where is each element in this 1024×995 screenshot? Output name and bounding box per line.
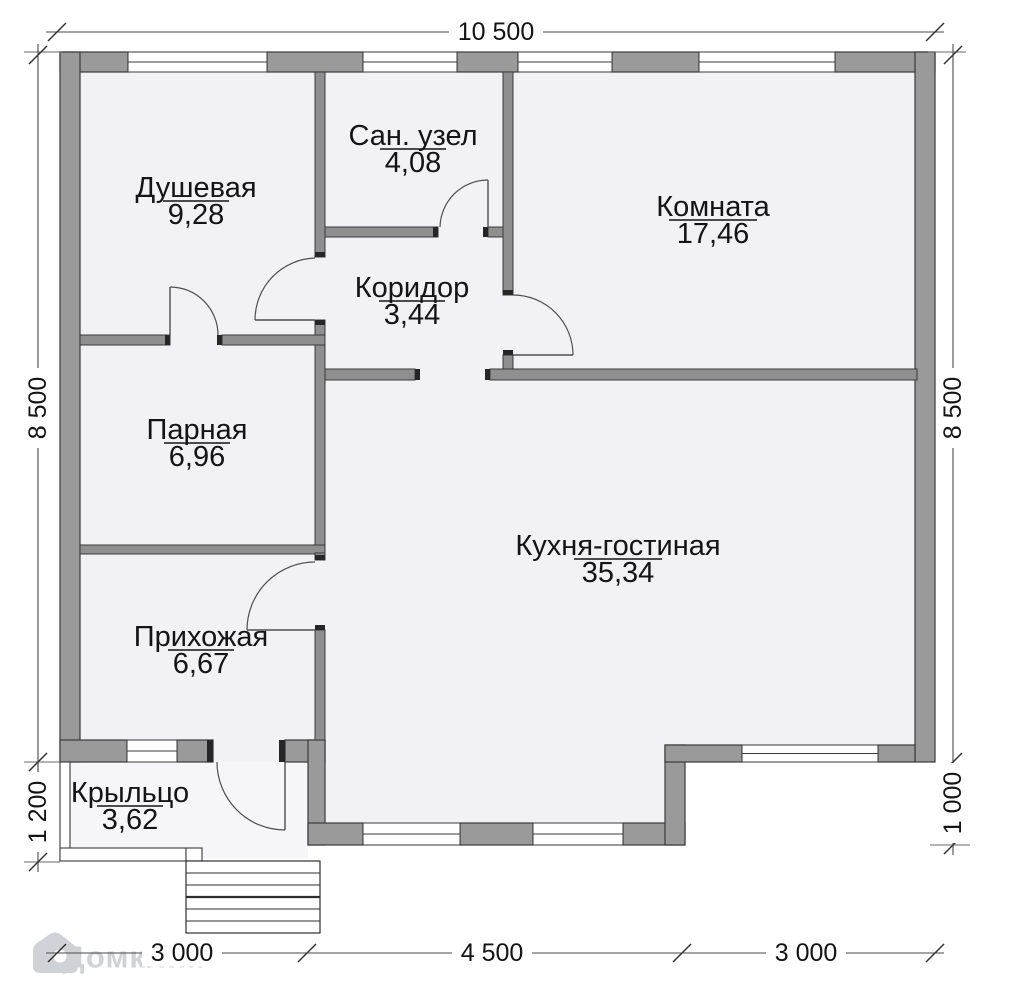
stairs xyxy=(186,861,320,933)
window-dushevaya xyxy=(128,52,267,72)
floor-plan-page: Домклик10 5008 5001 2008 5001 0003 0004 … xyxy=(0,0,1024,995)
dimension-label: 3 000 xyxy=(775,939,838,967)
window-komnata-right xyxy=(699,52,835,72)
room-area: 6,96 xyxy=(169,441,225,473)
floor-plan-canvas: Домклик10 5008 5001 2008 5001 0003 0004 … xyxy=(0,0,1024,995)
window-prihozhaya xyxy=(127,740,177,762)
window-kuhnya-left xyxy=(363,823,460,845)
room-area: 35,34 xyxy=(582,557,655,589)
dim-right-step: 1 000 xyxy=(939,762,967,855)
room-area: 3,44 xyxy=(384,299,440,331)
room-area: 4,08 xyxy=(385,147,441,179)
dimension-label: 4 500 xyxy=(461,939,524,967)
dimension-label: 1 200 xyxy=(24,781,52,844)
dimension-label: 8 500 xyxy=(939,377,967,440)
room-area: 17,46 xyxy=(677,218,750,250)
dimension-label: 8 500 xyxy=(24,377,52,440)
dimension-label: 1 000 xyxy=(939,772,967,835)
window-kuhnya-right xyxy=(533,823,623,845)
dimension-label: 3 000 xyxy=(151,939,214,967)
window-komnata-left xyxy=(518,52,612,72)
dimension-label: 10 500 xyxy=(458,18,534,46)
room-area: 3,62 xyxy=(102,804,158,836)
window-kuhnya-east xyxy=(742,745,878,762)
room-area: 9,28 xyxy=(168,199,224,231)
room-area: 6,67 xyxy=(173,648,229,680)
window-san-uzel xyxy=(363,52,457,72)
